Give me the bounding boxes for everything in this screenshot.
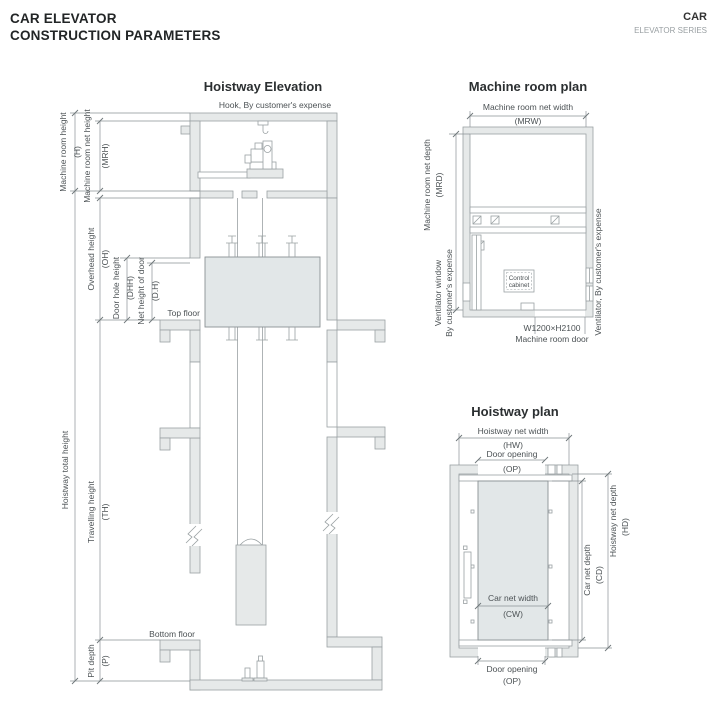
machine-beam [470,207,586,213]
page-title-line2: CONSTRUCTION PARAMETERS [10,28,221,43]
page-header: CAR ELEVATOR CONSTRUCTION PARAMETERS CAR… [10,11,707,43]
dim-car-net-depth-abbr: (CD) [594,566,604,584]
hoistway-right-wall-open [327,362,337,427]
dim-travelling-height: Travelling height [86,480,96,543]
pit-structure [190,637,382,690]
dim-overhead-height: Overhead height [86,227,96,290]
hoistway-right-wall [327,437,337,515]
ventilator-right-label: Ventilator, By customer's expense [593,208,603,336]
pit-buffers [242,656,267,681]
hoistway-left-wall [190,198,200,258]
brand-label: CAR [683,11,707,23]
machine-room-right-wall [327,121,337,198]
dim-machine-room-net-depth: Machine room net depth [422,139,432,231]
dim-overhead-height-abbr: (OH) [100,250,110,269]
elevation-title: Hoistway Elevation [204,79,323,94]
counterweight-plan [464,546,472,604]
dim-door-opening-top: Door opening [486,449,537,459]
dim-net-height-of-door-abbr: (D.H) [150,281,160,301]
dim-hoistway-total-height: Hoistway total height [60,430,70,509]
control-cabinet-label-line1: Control [509,275,530,282]
brand-sublabel: ELEVATOR SERIES [634,26,707,35]
hoistway-right-wall [327,533,337,637]
machine-room-roof-slab [190,113,337,121]
machine-room-door-size: W1200×H2100 [524,323,581,333]
hoistway-left-wall-open [190,362,200,428]
door-sill-bottom [459,640,572,646]
machine-room-door-label: Machine room door [515,334,588,344]
hoistway-right-wall [327,198,337,320]
hoistway-right-wall [327,330,337,362]
dim-door-opening-bottom-abbr: (OP) [503,676,521,686]
dim-pit-depth-abbr: (P) [100,655,110,667]
machine-room-floor [200,191,233,198]
machine-room-door-opening [535,311,585,317]
machine-room-floor [267,191,327,198]
hoistway-left-wall [190,438,200,527]
dim-door-opening-bottom: Door opening [486,664,537,674]
counterweight [236,539,266,625]
hoistway-plan-drawing [450,464,578,658]
control-cabinet-label-line2: cabinet [509,282,530,289]
dim-machine-room-net-height-abbr: (MRH) [100,143,110,168]
right-floor-slabs [337,320,385,449]
dim-machine-room-net-height: Machine room net height [82,109,92,203]
machine-beam [470,227,586,233]
dim-pit-depth: Pit depth [86,644,96,678]
top-floor-label: Top floor [167,308,200,318]
traction-machine [198,141,283,178]
hoistway-left-wall [190,543,200,573]
dim-machine-room-height-abbr: (H) [72,146,82,158]
dim-hoistway-net-depth: Hoistway net depth [608,485,618,558]
dim-car-net-depth: Car net depth [582,544,592,596]
bottom-floor-label: Bottom floor [149,629,195,639]
machine-room-door-leaf [521,303,534,310]
dim-machine-room-net-width-abbr: (MRW) [515,116,542,126]
ventilator-window-label-line2: By customer's expense [444,249,454,337]
dim-door-hole-height-abbr: (DHH) [125,276,135,300]
dim-machine-room-net-width: Machine room net width [483,102,574,112]
dim-car-net-width: Car net width [488,593,538,603]
door-sill-top [459,475,572,481]
dim-net-height-of-door: Net height of door [136,257,146,325]
elevator-car-elevation [205,257,320,327]
hoistway-left-wall [190,330,200,362]
hoistway-elevation-drawing [160,113,385,690]
hoistway-plan-title: Hoistway plan [471,404,558,419]
break-symbols [186,512,340,546]
page-title-line1: CAR ELEVATOR [10,11,117,26]
machine-room-plan-title: Machine room plan [469,79,588,94]
dim-door-hole-height: Door hole height [111,256,121,319]
ventilator-window-label-line1: Ventilator window [433,259,443,326]
ventilator-window [472,235,481,310]
dim-hoistway-net-width: Hoistway net width [478,426,549,436]
machine-room-floor [242,191,257,198]
dim-machine-room-net-depth-abbr: (MRD) [434,172,444,197]
construction-drawing: CAR ELEVATOR CONSTRUCTION PARAMETERS CAR… [0,0,715,715]
hook [258,121,268,134]
dim-car-net-width-abbr: (CW) [503,609,523,619]
machine-room-left-ledge [181,126,190,134]
dim-hoistway-net-depth-abbr: (HD) [620,518,630,536]
dim-travelling-height-abbr: (TH) [100,503,110,520]
hook-note: Hook, By customer's expense [219,100,331,110]
machine-room-left-wall [190,121,200,191]
ventilator-left [463,283,470,301]
dim-machine-room-height: Machine room height [58,112,68,192]
door-opening-bottom [478,647,545,658]
dim-door-opening-top-abbr: (OP) [503,464,521,474]
